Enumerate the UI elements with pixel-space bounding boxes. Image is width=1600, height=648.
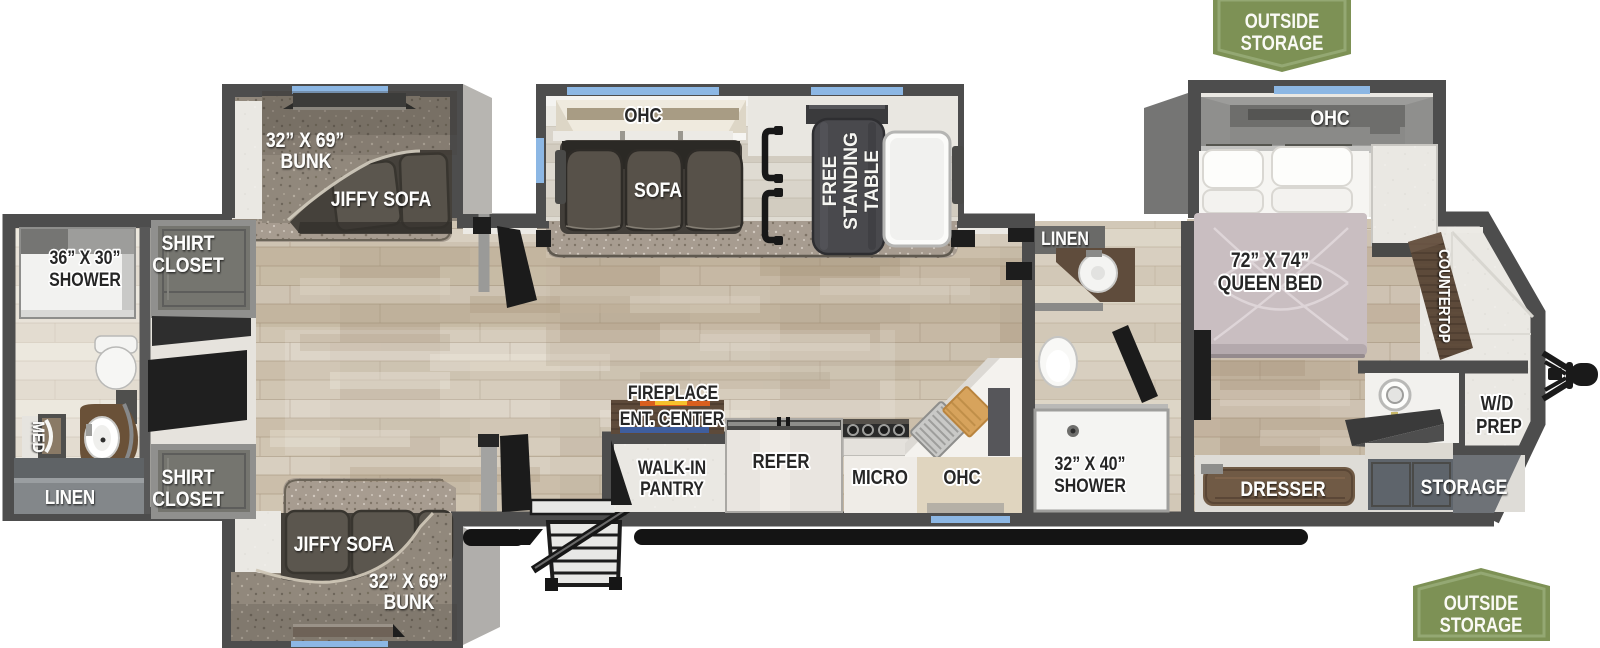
svg-text:SHIRT: SHIRT	[162, 466, 215, 490]
svg-text:OHC: OHC	[943, 466, 980, 489]
svg-text:72” X 74”: 72” X 74”	[1231, 249, 1309, 273]
svg-text:MICRO: MICRO	[852, 466, 908, 489]
svg-text:REFER: REFER	[753, 450, 810, 473]
svg-text:36” X 30”: 36” X 30”	[50, 247, 121, 269]
svg-text:OHC: OHC	[624, 104, 661, 127]
svg-text:JIFFY SOFA: JIFFY SOFA	[331, 188, 432, 212]
svg-text:OHC: OHC	[1310, 107, 1349, 131]
svg-text:QUEEN BED: QUEEN BED	[1218, 272, 1323, 296]
svg-text:SHOWER: SHOWER	[49, 269, 121, 291]
svg-text:LINEN: LINEN	[1041, 228, 1089, 250]
svg-text:COUNTERTOP: COUNTERTOP	[1435, 249, 1452, 343]
svg-text:STANDING: STANDING	[841, 132, 862, 230]
svg-text:CLOSET: CLOSET	[152, 254, 224, 278]
svg-text:PANTRY: PANTRY	[640, 478, 704, 500]
svg-text:SOFA: SOFA	[634, 179, 682, 203]
svg-text:ENT. CENTER: ENT. CENTER	[620, 408, 725, 430]
svg-text:STORAGE: STORAGE	[1421, 476, 1508, 500]
svg-text:STORAGE: STORAGE	[1440, 614, 1523, 637]
svg-text:STORAGE: STORAGE	[1241, 32, 1324, 55]
svg-text:BUNK: BUNK	[384, 591, 435, 615]
svg-text:32” X 40”: 32” X 40”	[1055, 453, 1126, 475]
svg-text:MED: MED	[29, 421, 47, 453]
svg-text:FREE: FREE	[820, 156, 841, 207]
svg-text:OUTSIDE: OUTSIDE	[1245, 10, 1320, 33]
svg-text:OUTSIDE: OUTSIDE	[1444, 592, 1519, 615]
svg-text:CLOSET: CLOSET	[152, 488, 224, 512]
svg-text:JIFFY SOFA: JIFFY SOFA	[294, 533, 395, 557]
svg-text:SHOWER: SHOWER	[1054, 475, 1126, 497]
svg-text:SHIRT: SHIRT	[162, 232, 215, 256]
svg-text:FIREPLACE: FIREPLACE	[628, 382, 719, 404]
svg-text:BUNK: BUNK	[281, 150, 332, 174]
svg-text:TABLE: TABLE	[862, 150, 883, 212]
svg-text:LINEN: LINEN	[45, 486, 95, 509]
svg-text:DRESSER: DRESSER	[1240, 478, 1325, 502]
svg-text:WALK-IN: WALK-IN	[638, 457, 706, 479]
svg-text:PREP: PREP	[1476, 415, 1522, 438]
svg-text:W/D: W/D	[1481, 392, 1514, 415]
